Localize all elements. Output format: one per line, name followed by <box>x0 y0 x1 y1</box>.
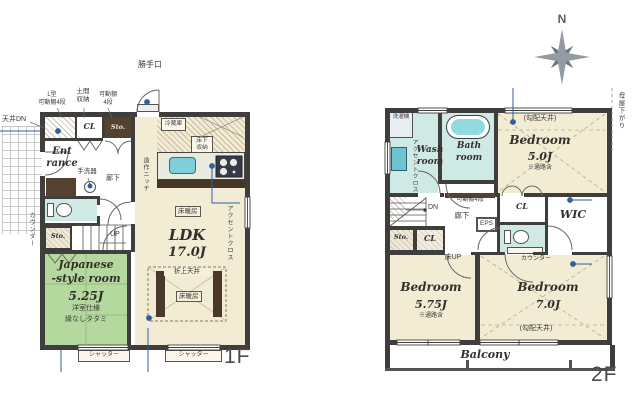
label-moya-sagari: 母屋下がり <box>615 92 625 148</box>
label-cl-stairs: CL <box>421 233 439 243</box>
label-ldk-name: LDK <box>159 226 215 244</box>
stair-cabinet <box>46 178 76 196</box>
label-accent-cloth-1f: アクセントクロス <box>225 205 234 267</box>
label-floor-heating-2: 床暖房 <box>176 291 202 302</box>
label-japanese-room-note1: 洋室仕様 <box>46 305 126 314</box>
toilet1-bowl <box>56 203 72 217</box>
label-bedroom50-ceiling: (勾配天井) <box>500 115 580 124</box>
label-bedroom575-note: ※通路含 <box>396 313 466 321</box>
label-counter-2f: カウンター <box>516 256 556 264</box>
toilet2-bowl <box>513 230 529 244</box>
label-bath-room: Bath room <box>450 141 488 164</box>
floorplan-canvas: 勝手口 L型 可動棚4段 土間 収納 可動棚 4段 天井DN CL Sto. 冷… <box>0 0 640 409</box>
toilet1-tank <box>47 203 54 217</box>
compass-rose-icon <box>534 29 590 85</box>
toilet2-tank <box>504 230 511 244</box>
label-oriage-ceiling: 折上天井 <box>164 268 210 276</box>
label-eps: EPS <box>477 220 496 228</box>
label-floor-heating-1: 床暖房 <box>175 206 201 217</box>
approach-grid <box>2 126 42 234</box>
label-l-shelf: L型 可動棚4段 <box>34 92 70 107</box>
label-hallway-2f: 廊下 <box>449 211 475 220</box>
label-shelf4-1f: 可動棚 4段 <box>95 92 121 107</box>
label-wash-room: Wash room <box>415 145 445 168</box>
label-sto-lower: Sto. <box>45 232 71 240</box>
label-bedroom70-size: 7.0J <box>508 298 588 311</box>
label-bedroom50-size: 5.0J <box>505 150 575 163</box>
compass-north-label: N <box>552 12 572 27</box>
label-sto-upper: Sto. <box>105 123 131 131</box>
label-shutter-2: シャッター <box>166 352 221 360</box>
label-cl-bedroom: CL <box>512 201 532 211</box>
label-counter-1f: カウンター <box>27 212 36 256</box>
label-hallway-1f: 廊下 <box>102 175 124 184</box>
label-bedroom575-size: 5.75J <box>396 298 466 311</box>
label-washer: 洗濯機 <box>389 114 413 121</box>
label-floor-up: 床UP <box>440 254 466 263</box>
stairwell-hatch <box>388 197 406 219</box>
kitchen-sink <box>169 157 196 174</box>
wash-basin-2f <box>391 147 407 171</box>
label-japanese-room-name: Japanese -style room <box>46 258 126 287</box>
label-bedroom70-ceiling: (勾配天井) <box>496 325 576 334</box>
label-bedroom575-name: Bedroom <box>396 280 466 294</box>
floor1-label: 1F <box>224 345 251 369</box>
label-underfloor-storage: 床下 収納 <box>191 138 213 152</box>
back-door-step <box>137 104 159 112</box>
label-bedroom50-name: Bedroom <box>505 133 575 147</box>
counter-front-panel <box>157 180 245 188</box>
label-bedroom70-name: Bedroom <box>508 280 588 294</box>
counter2f-strip <box>507 247 543 254</box>
label-balcony: Balcony <box>450 348 520 361</box>
hand-basin-bowl <box>84 181 96 193</box>
bathtub-water <box>451 119 485 135</box>
label-up: UP <box>105 231 125 240</box>
label-entrance: Ent rance <box>46 146 78 170</box>
label-sto-2f: Sto. <box>388 233 414 241</box>
label-dn: DN <box>428 204 448 213</box>
label-cl-1f: CL <box>77 121 102 131</box>
label-back-door: 勝手口 <box>132 60 168 70</box>
label-shelf4-2f: 可動棚4段 <box>447 197 493 205</box>
label-doma-storage: 土間 収納 <box>72 88 94 104</box>
label-japanese-room-size: 5.25J <box>46 289 126 303</box>
label-ceiling-dn: 天井DN <box>2 116 34 125</box>
label-bedroom50-note: ※通路含 <box>505 165 575 173</box>
label-fridge: 冷蔵庫 <box>161 121 186 128</box>
label-niche: 造作ニッチ <box>141 157 150 221</box>
label-shutter-1: シャッター <box>79 352 129 360</box>
label-hand-basin: 手洗器 <box>74 168 100 176</box>
label-wic: WIC <box>552 208 594 221</box>
label-ldk-size: 17.0J <box>159 245 215 260</box>
floor2-label: 2F <box>591 363 618 387</box>
label-japanese-room-note2: 縁なしタタミ <box>46 316 126 325</box>
entrance-porch <box>45 117 77 138</box>
